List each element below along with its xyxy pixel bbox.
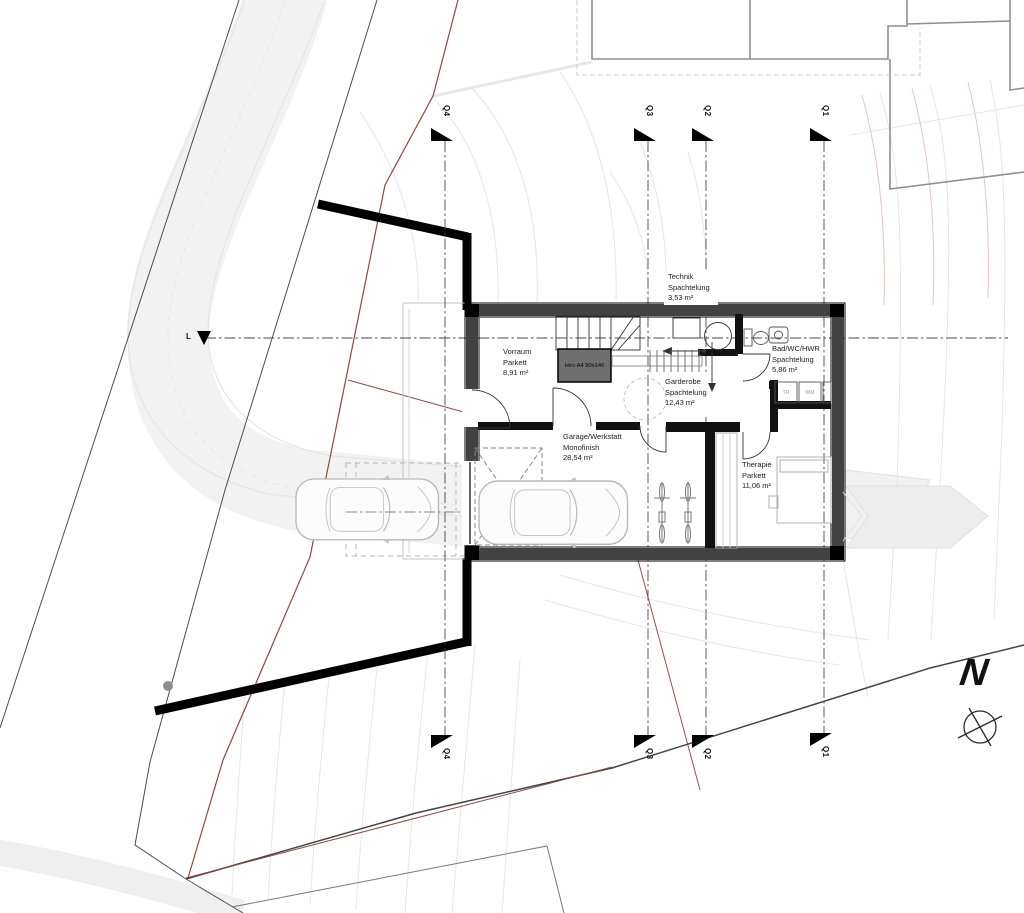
room-name: Technik <box>668 272 710 283</box>
lift-label: Hiro A4 90x146 <box>558 349 611 382</box>
car-in-garage <box>479 477 628 548</box>
section-label-q1-top: Q1 <box>818 105 830 127</box>
room-label-vorraum: Vorraum Parkett 8,91 m² <box>503 347 531 379</box>
room-label-therapie: Therapie Parkett 11,06 m² <box>742 460 772 492</box>
room-name: Garage/Werkstatt <box>563 432 622 443</box>
room-label-bad: Bad/WC/HWR Spachtelung 5,86 m² <box>772 344 820 376</box>
room-finish: Parkett <box>503 358 531 369</box>
room-area: 11,06 m² <box>742 481 772 492</box>
room-name: Vorraum <box>503 347 531 358</box>
room-label-garage: Garage/Werkstatt Monofinish 28,54 m² <box>563 432 622 464</box>
section-label-q2-top: Q2 <box>700 105 712 127</box>
north-label: N <box>957 652 1015 696</box>
compass-icon <box>958 708 1002 746</box>
room-area: 5,86 m² <box>772 365 820 376</box>
terrain-contours-red <box>862 82 988 305</box>
room-finish: Spachtelung <box>668 283 710 294</box>
therapie-furniture <box>716 433 831 548</box>
room-finish: Monofinish <box>563 443 622 454</box>
neighbor-buildings-dashed <box>577 0 920 75</box>
car-outside <box>296 475 439 543</box>
room-area: 28,54 m² <box>563 453 622 464</box>
room-area: 3,53 m² <box>668 293 710 304</box>
room-finish: Spachtelung <box>772 355 820 366</box>
survey-point <box>163 681 173 691</box>
section-label-q1-bottom: Q1 <box>818 746 830 768</box>
room-area: 8,91 m² <box>503 368 531 379</box>
stair-arrow-head <box>662 347 672 355</box>
section-label-q3-bottom: Q3 <box>642 748 654 770</box>
room-finish: Spachtelung <box>665 388 707 399</box>
room-finish: Parkett <box>742 471 772 482</box>
section-label-q4-bottom: Q4 <box>439 748 451 770</box>
section-label-q4-top: Q4 <box>439 105 451 127</box>
washer-label: WM <box>799 383 821 402</box>
dryer-label: TR <box>775 383 797 402</box>
room-label-technik: Technik Spachtelung 3,53 m² <box>668 272 710 304</box>
section-label-l: L <box>186 332 191 341</box>
bicycles <box>654 482 696 543</box>
site-linework <box>0 0 1024 913</box>
room-area: 12,43 m² <box>665 398 707 409</box>
technik-equipment <box>673 318 732 350</box>
neighbor-buildings <box>592 0 1024 189</box>
section-label-q3-top: Q3 <box>642 105 654 127</box>
stair-arrow-start <box>702 349 706 353</box>
section-label-q2-bottom: Q2 <box>700 748 712 770</box>
drive-direction-arrow <box>846 486 988 548</box>
room-name: Garderobe <box>665 377 707 388</box>
room-name: Bad/WC/HWR <box>772 344 820 355</box>
room-label-garderobe: Garderobe Spachtelung 12,43 m² <box>665 377 707 409</box>
site-floor-plan: Technik Spachtelung 3,53 m² Vorraum Park… <box>0 0 1024 913</box>
room-name: Therapie <box>742 460 772 471</box>
